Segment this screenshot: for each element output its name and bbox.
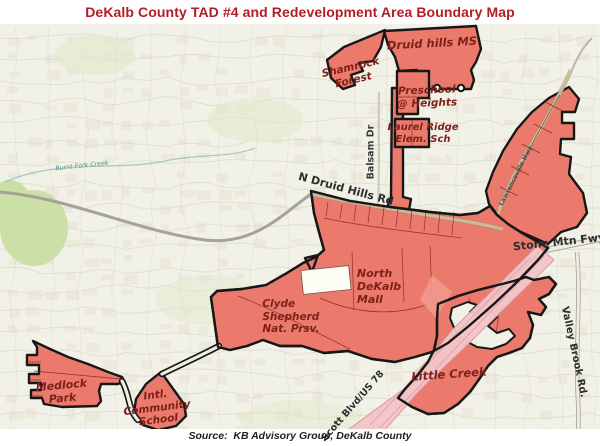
boundary-notch-circle <box>458 85 464 91</box>
valley-brook-rd-road <box>577 252 578 429</box>
source-attribution: Source: KB Advisory Group, DeKalb County <box>0 430 600 442</box>
dekalb-tad4-boundary-map <box>0 24 600 429</box>
map-title: DeKalb County TAD #4 and Redevelopment A… <box>0 4 600 20</box>
map-page: DeKalb County TAD #4 and Redevelopment A… <box>0 0 600 446</box>
mall-building <box>301 266 351 295</box>
balsam-dr-road <box>378 92 379 205</box>
boundary-notch-circle <box>434 85 440 91</box>
